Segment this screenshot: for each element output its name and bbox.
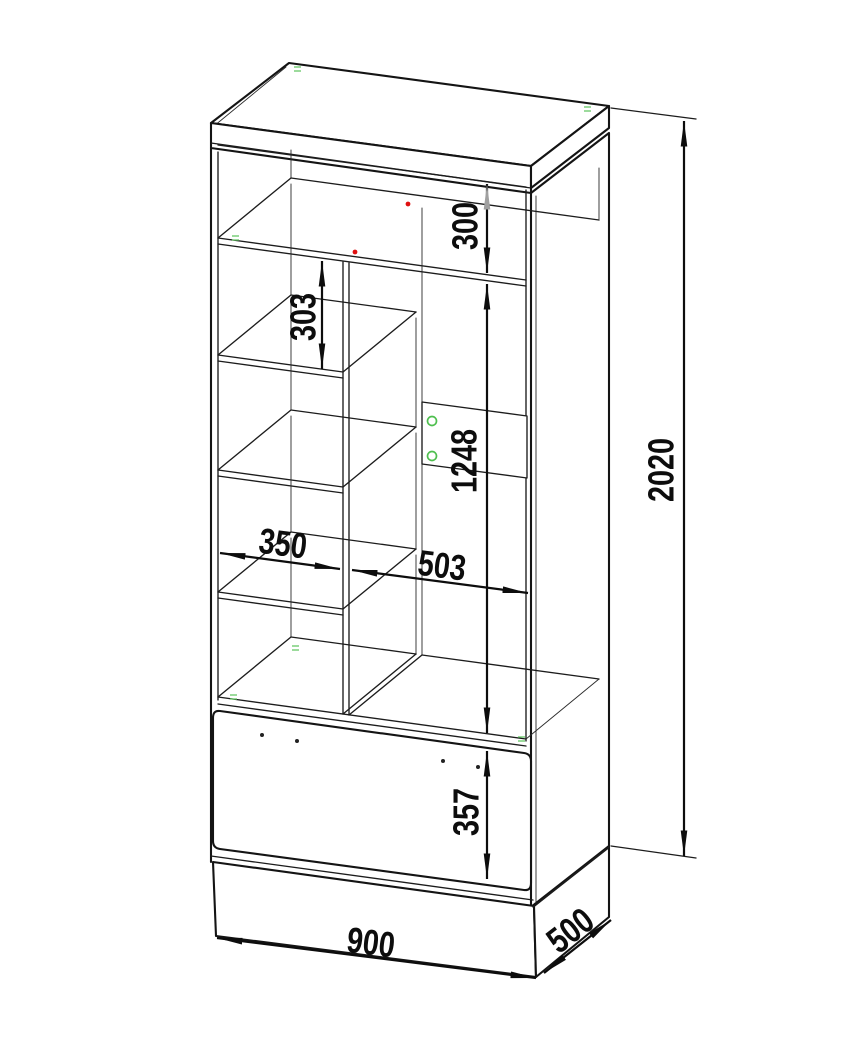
dim-label-350: 350 xyxy=(257,520,310,567)
dim-label-303: 303 xyxy=(283,293,324,341)
dimension-right-compartment-1248: 1248 xyxy=(444,284,487,733)
handle-hole xyxy=(295,739,299,743)
handle-hole xyxy=(441,759,445,763)
handle-hole xyxy=(476,765,480,769)
dimension-left-column-350: 350 xyxy=(220,520,340,569)
dim-label-900: 900 xyxy=(345,919,398,965)
wardrobe-technical-drawing: 300 303 1248 350 503 357 2020 900 500 xyxy=(0,0,843,1047)
dim-label-503: 503 xyxy=(416,542,469,589)
dimension-right-compartment-503: 503 xyxy=(352,542,528,593)
handle-hole xyxy=(260,733,264,737)
dim-label-2020: 2020 xyxy=(641,438,682,502)
dimension-top-compartment-300: 300 xyxy=(445,184,487,273)
dimension-left-shelf-gap-303: 303 xyxy=(283,261,324,369)
red-dowel-dot xyxy=(406,202,411,207)
green-cam-mark xyxy=(232,236,239,240)
red-dowel-dot xyxy=(353,250,358,255)
cabinet-top-cornice xyxy=(211,63,609,193)
dimension-overall-height-2020: 2020 xyxy=(611,108,696,858)
dim-label-357: 357 xyxy=(446,788,487,836)
cam-hole-marker xyxy=(428,452,437,461)
green-cam-mark xyxy=(230,695,237,699)
dim-label-300: 300 xyxy=(445,202,486,250)
drawing-canvas: 300 303 1248 350 503 357 2020 900 500 xyxy=(0,0,843,1047)
green-cam-mark xyxy=(292,646,299,650)
dim-label-1248: 1248 xyxy=(444,429,485,493)
cam-hole-marker xyxy=(428,417,437,426)
